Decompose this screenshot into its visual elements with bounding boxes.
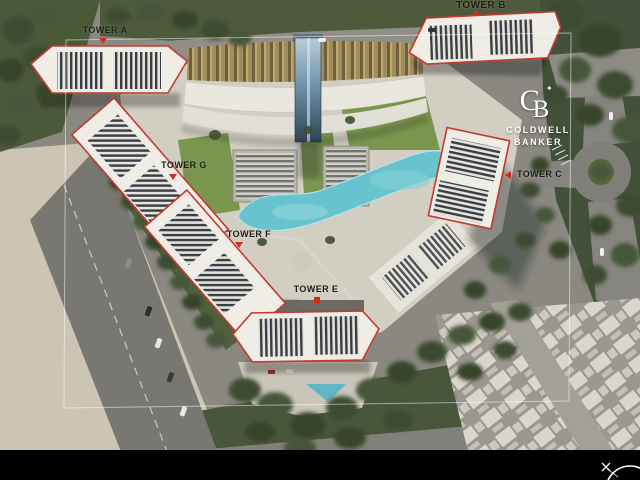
tower-c-marker-icon [505, 171, 511, 179]
tower-a-label: TOWER A [83, 26, 128, 35]
tower-b-label: TOWER B [456, 1, 506, 11]
tower-e-marker-icon [314, 297, 320, 303]
tower-f-label: TOWER F [227, 230, 271, 239]
tower-g-marker-icon [169, 174, 177, 180]
tower-g-label: TOWER G [161, 161, 207, 170]
tower-c-label: TOWER C [517, 170, 562, 179]
star-icon: ✦ [546, 85, 553, 93]
brand-line-1: COLDWELL [500, 124, 576, 136]
cb-monogram: C✦B [500, 86, 576, 124]
coldwell-banker-logo: C✦B COLDWELL BANKER [500, 86, 576, 148]
tower-e-label: TOWER E [294, 285, 339, 294]
masterplan-screenshot: TOWER A TOWER B TOWER C TOWER G TOWER F … [0, 0, 640, 480]
aerial-site-plan [0, 0, 640, 480]
brand-line-2: BANKER [500, 136, 576, 148]
tower-f-marker-icon [235, 242, 243, 248]
bottom-letterbox-bar [0, 450, 640, 480]
tower-a-marker-icon [99, 38, 107, 44]
corner-logo-icon [510, 450, 640, 480]
monogram-b: B [533, 97, 550, 122]
tower-b-marker-icon [474, 11, 479, 16]
